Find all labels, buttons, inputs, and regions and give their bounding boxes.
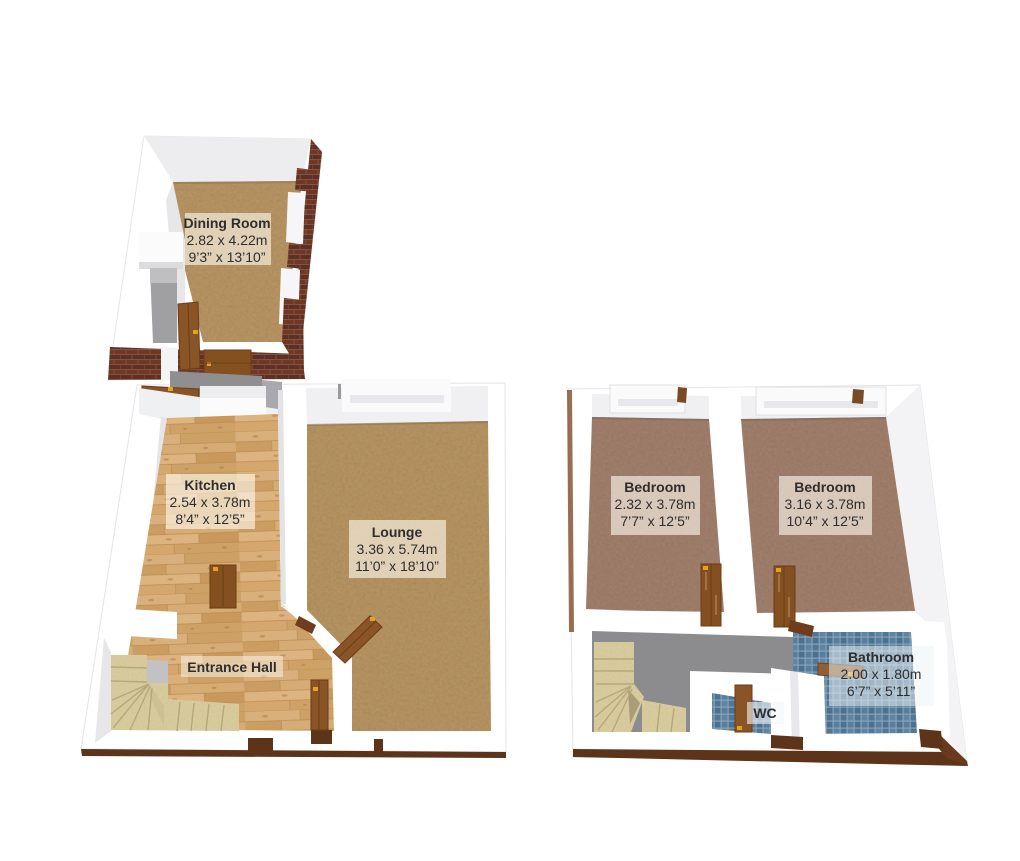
svg-text:10’4” x 12’5”: 10’4” x 12’5” xyxy=(786,513,863,529)
svg-text:Dining Room: Dining Room xyxy=(183,215,270,231)
svg-text:7’7” x 12’5”: 7’7” x 12’5” xyxy=(620,513,690,529)
svg-text:Bathroom: Bathroom xyxy=(848,649,914,665)
svg-text:6’7” x 5’11”: 6’7” x 5’11” xyxy=(847,683,916,699)
svg-text:3.16 x 3.78m: 3.16 x 3.78m xyxy=(785,496,866,512)
svg-text:2.00 x 1.80m: 2.00 x 1.80m xyxy=(841,666,922,682)
svg-text:WC: WC xyxy=(753,705,776,721)
svg-text:Kitchen: Kitchen xyxy=(184,477,235,493)
svg-text:3.36 x 5.74m: 3.36 x 5.74m xyxy=(357,541,438,557)
svg-text:11’0” x 18’10”: 11’0” x 18’10” xyxy=(355,558,439,574)
svg-text:Bedroom: Bedroom xyxy=(624,479,685,495)
svg-text:8’4” x 12’5”: 8’4” x 12’5” xyxy=(175,511,245,527)
svg-text:2.82 x 4.22m: 2.82 x 4.22m xyxy=(187,232,268,248)
svg-text:Entrance Hall: Entrance Hall xyxy=(187,659,276,675)
svg-text:Lounge: Lounge xyxy=(372,524,423,540)
svg-text:9’3” x 13’10”: 9’3” x 13’10” xyxy=(188,249,265,265)
svg-text:2.54 x 3.78m: 2.54 x 3.78m xyxy=(170,494,251,510)
svg-text:Bedroom: Bedroom xyxy=(794,479,855,495)
svg-text:2.32 x 3.78m: 2.32 x 3.78m xyxy=(615,496,696,512)
